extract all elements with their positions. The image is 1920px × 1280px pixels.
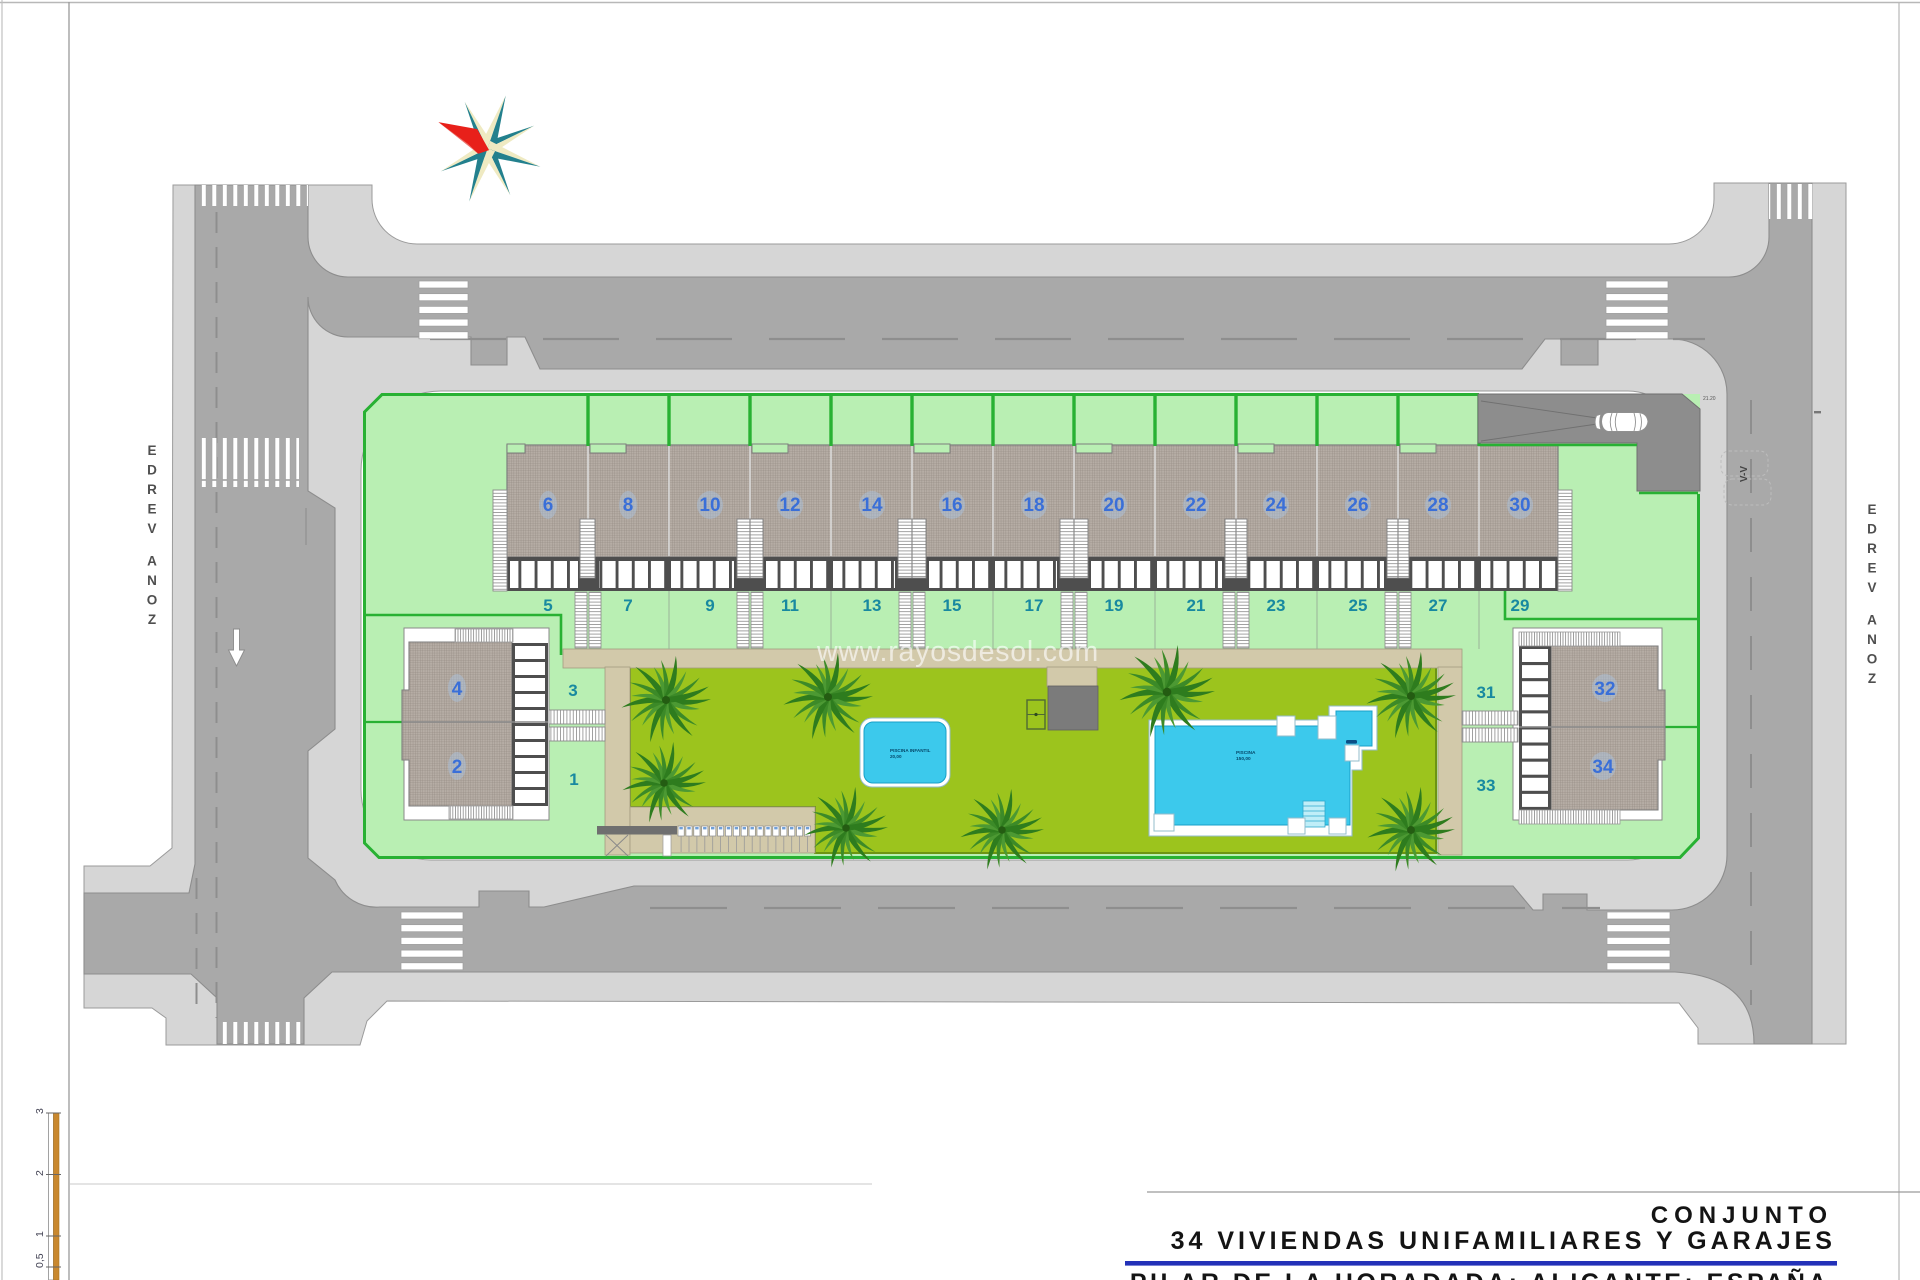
svg-text:O: O	[1867, 652, 1878, 667]
svg-text:26: 26	[1347, 495, 1368, 516]
svg-text:11: 11	[781, 596, 799, 615]
svg-text:CONJUNTO: CONJUNTO	[1651, 1202, 1833, 1229]
svg-text:12: 12	[779, 495, 800, 516]
svg-text:E: E	[1867, 561, 1876, 576]
svg-text:1: 1	[569, 770, 578, 789]
svg-text:E: E	[147, 443, 156, 458]
svg-text:31: 31	[1477, 683, 1496, 702]
svg-text:7: 7	[623, 596, 632, 615]
svg-text:V: V	[1867, 580, 1876, 595]
svg-text:21: 21	[1187, 596, 1206, 615]
svg-text:N: N	[1867, 632, 1877, 647]
svg-text:34: 34	[1592, 757, 1614, 778]
svg-text:www.rayosdesol.com: www.rayosdesol.com	[816, 636, 1099, 668]
svg-text:V: V	[147, 521, 156, 536]
svg-text:15: 15	[943, 596, 962, 615]
svg-text:Z: Z	[1868, 671, 1876, 686]
svg-text:28: 28	[1427, 495, 1448, 516]
svg-text:3: 3	[568, 681, 577, 700]
svg-text:5: 5	[543, 596, 552, 615]
svg-text:17: 17	[1025, 596, 1044, 615]
svg-text:20: 20	[1103, 495, 1124, 516]
svg-text:1: 1	[34, 1231, 46, 1237]
svg-text:8: 8	[623, 495, 634, 516]
svg-text:16: 16	[941, 495, 962, 516]
svg-text:4: 4	[452, 679, 463, 700]
svg-text:A: A	[1867, 613, 1877, 628]
svg-text:33: 33	[1477, 776, 1496, 795]
svg-text:N: N	[147, 573, 157, 588]
svg-text:23: 23	[1267, 596, 1286, 615]
svg-text:22: 22	[1185, 495, 1206, 516]
svg-text:D: D	[147, 463, 157, 478]
svg-text:2: 2	[34, 1170, 46, 1176]
svg-text:O: O	[147, 593, 158, 608]
svg-text:29: 29	[1511, 596, 1530, 615]
svg-text:V-V: V-V	[1739, 466, 1750, 482]
svg-text:Z: Z	[148, 612, 156, 627]
svg-text:10: 10	[699, 495, 720, 516]
svg-text:PISCINA INFANTIL: PISCINA INFANTIL	[890, 748, 931, 753]
svg-text:14: 14	[861, 495, 883, 516]
svg-text:D: D	[1867, 522, 1877, 537]
svg-text:E: E	[147, 502, 156, 517]
svg-text:30: 30	[1509, 495, 1530, 516]
svg-text:0,5: 0,5	[34, 1253, 46, 1268]
svg-text:27: 27	[1429, 596, 1448, 615]
svg-text:34 VIVIENDAS UNIFAMILIARES Y G: 34 VIVIENDAS UNIFAMILIARES Y GARAJES	[1171, 1227, 1836, 1255]
svg-text:PILAR DE LA HORADADA; ALICANTE: PILAR DE LA HORADADA; ALICANTE; ESPAÑA	[1130, 1267, 1830, 1280]
svg-text:R: R	[1867, 541, 1877, 556]
svg-text:25: 25	[1349, 596, 1368, 615]
svg-text:13: 13	[863, 596, 882, 615]
svg-text:32: 32	[1594, 679, 1615, 700]
svg-text:R: R	[147, 482, 157, 497]
svg-text:21.20: 21.20	[1703, 396, 1716, 402]
svg-text:20,00: 20,00	[890, 754, 902, 759]
svg-text:A: A	[147, 554, 157, 569]
svg-text:2: 2	[452, 757, 463, 778]
svg-text:PISCINA: PISCINA	[1236, 750, 1256, 756]
svg-text:18: 18	[1023, 495, 1044, 516]
svg-text:19: 19	[1105, 596, 1124, 615]
svg-text:E: E	[1867, 502, 1876, 517]
svg-text:9: 9	[705, 596, 714, 615]
svg-text:150,00: 150,00	[1236, 756, 1251, 762]
svg-text:24: 24	[1265, 495, 1287, 516]
svg-text:3: 3	[34, 1108, 46, 1114]
svg-text:6: 6	[543, 495, 554, 516]
